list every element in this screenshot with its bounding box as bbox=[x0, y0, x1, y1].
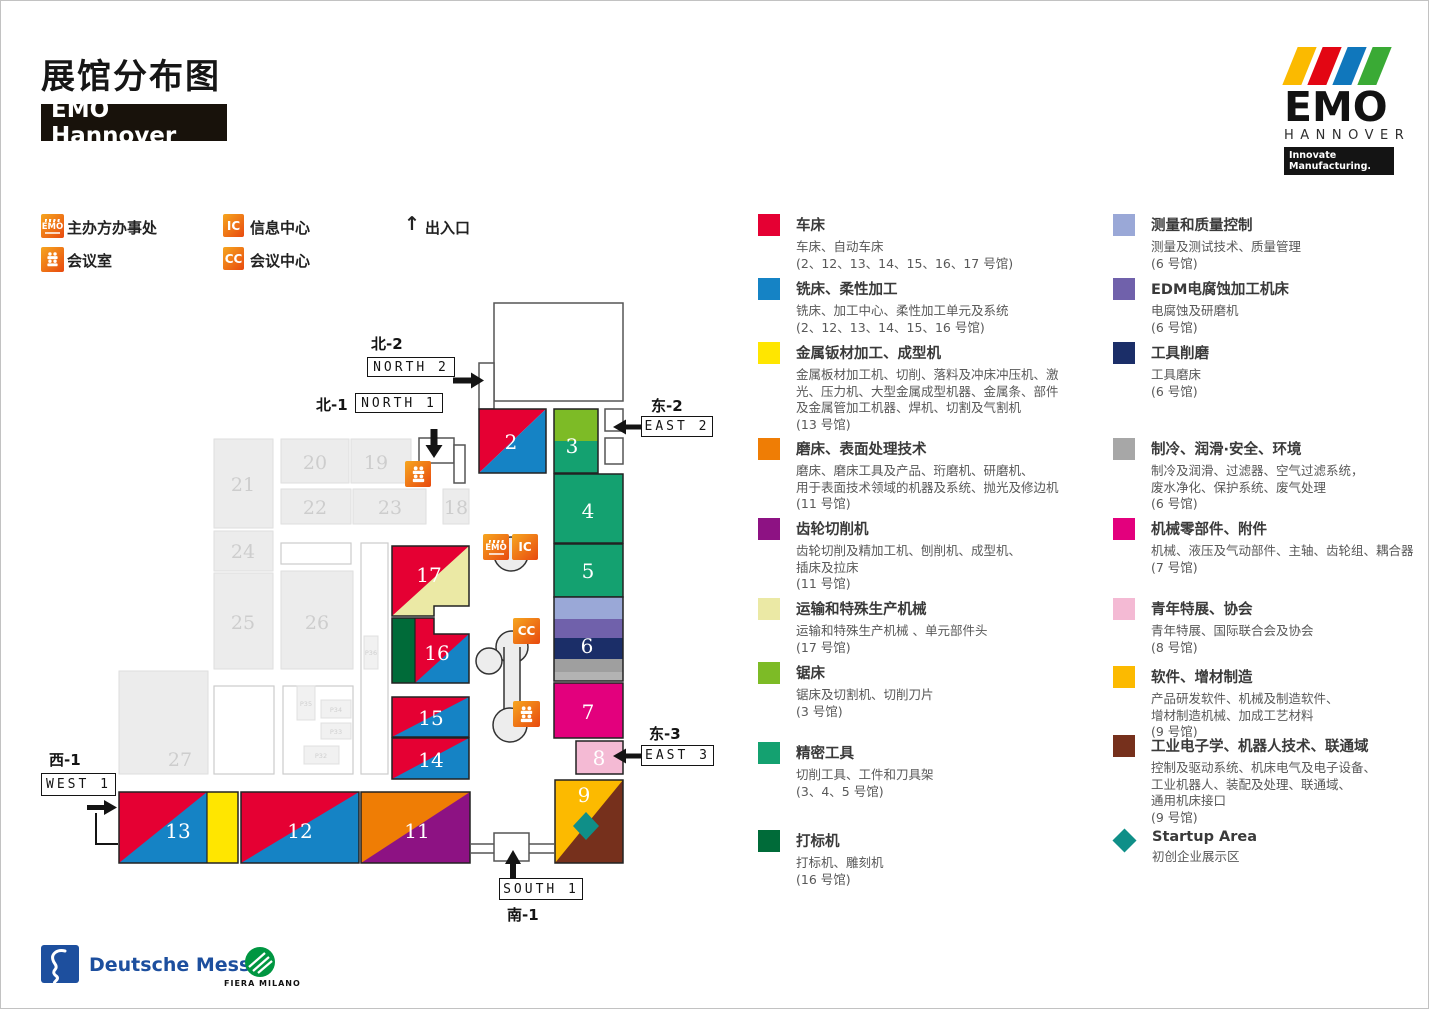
fiera-milano-logo bbox=[245, 947, 275, 977]
legend-item-robotics: 工业电子学、机器人技术、联通域 控制及驱动系统、机床电气及电子设备、工业机器人、… bbox=[1113, 735, 1429, 826]
east2-box: EAST 2 bbox=[641, 416, 713, 437]
hall-3-label: 3 bbox=[566, 434, 579, 458]
hall-26-label: 26 bbox=[305, 612, 329, 634]
fiera-milano-wordmark: FIERA MILANO bbox=[224, 979, 301, 988]
hall-22-label: 22 bbox=[303, 497, 327, 519]
entrance-arrow-icon: ↑ bbox=[404, 213, 420, 235]
hall-13-label: 13 bbox=[165, 819, 190, 843]
map-north-meeting-room-icon bbox=[405, 461, 431, 487]
hall-25-label: 25 bbox=[231, 612, 255, 634]
cooling-swatch bbox=[1113, 438, 1135, 460]
hall-11-label: 11 bbox=[404, 819, 429, 843]
category-desc: 切削工具、工件和刀具架 bbox=[796, 767, 1091, 784]
legend-item-edm: EDM电腐蚀加工机床 电腐蚀及研磨机 (6 号馆) bbox=[1113, 278, 1429, 336]
legend-item-sheet-metal: 金属钣材加工、成型机 金属板材加工机、切削、落料及冲床冲压机、激光、压力机、大型… bbox=[758, 342, 1091, 433]
organizer-office-label: 主办方办事处 bbox=[67, 217, 157, 238]
category-title: 软件、增材制造 bbox=[1151, 666, 1429, 687]
category-halls: (8 号馆) bbox=[1151, 640, 1429, 657]
hall-14-label: 14 bbox=[418, 748, 443, 772]
south1-box: SOUTH 1 bbox=[499, 878, 583, 900]
category-halls: (3 号馆) bbox=[796, 704, 1091, 721]
category-title: 金属钣材加工、成型机 bbox=[796, 342, 1091, 363]
legend-item-measuring: 测量和质量控制 测量及测试技术、质量管理 (6 号馆) bbox=[1113, 214, 1429, 272]
organizer-office-icon: EMO bbox=[41, 214, 64, 238]
category-title: EDM电腐蚀加工机床 bbox=[1151, 278, 1429, 299]
category-halls: (6 号馆) bbox=[1151, 256, 1429, 273]
tool-grinding-swatch bbox=[1113, 342, 1135, 364]
hall-2-label: 2 bbox=[505, 430, 518, 454]
category-desc: 齿轮切削及精加工机、刨削机、成型机、插床及拉床 bbox=[796, 543, 1091, 576]
hall-27-label: 27 bbox=[168, 749, 192, 771]
category-desc: 制冷及润滑、过滤器、空气过滤系统，废水净化、保护系统、废气处理 bbox=[1151, 463, 1429, 496]
sheet-metal-swatch bbox=[758, 342, 780, 364]
category-desc: 初创企业展示区 bbox=[1152, 849, 1429, 866]
hall-5-label: 5 bbox=[582, 559, 595, 583]
legend-item-gear-cutting: 齿轮切削机 齿轮切削及精加工机、刨削机、成型机、插床及拉床 (11 号馆) bbox=[758, 518, 1091, 593]
map-organizer-office-icon: EMO bbox=[483, 534, 509, 560]
p33-label: P33 bbox=[330, 728, 342, 736]
map-info-center-icon: IC bbox=[512, 534, 538, 560]
grinding-swatch bbox=[758, 438, 780, 460]
category-halls: (6 号馆) bbox=[1151, 384, 1429, 401]
emo-logo-hannover: HANNOVER bbox=[1284, 128, 1394, 143]
entrance-label: 出入口 bbox=[425, 217, 470, 238]
milling-swatch bbox=[758, 278, 780, 300]
lathe-swatch bbox=[758, 214, 780, 236]
meeting-room-label: 会议室 bbox=[67, 250, 112, 271]
info-center-label: 信息中心 bbox=[250, 217, 310, 238]
hall-12-label: 12 bbox=[287, 819, 312, 843]
category-halls: (7 号馆) bbox=[1151, 560, 1429, 577]
category-desc: 产品研发软件、机械及制造软件、增材制造机械、加成工艺材料 bbox=[1151, 691, 1429, 724]
emo-hannover-logo: EMO HANNOVER Innovate Manufacturing. bbox=[1284, 47, 1394, 175]
legend-item-milling: 铣床、柔性加工 铣床、加工中心、柔性加工单元及系统 (2、12、13、14、15… bbox=[758, 278, 1091, 336]
legend-item-youth: 青年特展、协会 青年特展、国际联合会及协会 (8 号馆) bbox=[1113, 598, 1429, 656]
hall-distribution-page: P35 P34 P33 P32 P36 bbox=[0, 0, 1429, 1009]
precision-tools-swatch bbox=[758, 742, 780, 764]
legend-item-grinding: 磨床、表面处理技术 磨床、磨床工具及产品、珩磨机、研磨机、用于表面技术领域的机器… bbox=[758, 438, 1091, 513]
measuring-swatch bbox=[1113, 214, 1135, 236]
category-desc: 运输和特殊生产机械 、单元部件头 bbox=[796, 623, 1091, 640]
category-halls: (11 号馆) bbox=[796, 496, 1091, 513]
category-desc: 机械、液压及气动部件、主轴、齿轮组、耦合器 bbox=[1151, 543, 1429, 560]
info-center-icon: IC bbox=[223, 214, 244, 237]
legend-item-sawing: 锯床 锯床及切割机、切削刀片 (3 号馆) bbox=[758, 662, 1091, 720]
category-desc: 青年特展、国际联合会及协会 bbox=[1151, 623, 1429, 640]
west1-arrow bbox=[87, 800, 117, 815]
north1-box: NORTH 1 bbox=[355, 393, 443, 413]
hall-19-label: 19 bbox=[364, 452, 388, 474]
north2-box: NORTH 2 bbox=[367, 357, 455, 377]
east3-box: EAST 3 bbox=[641, 745, 714, 766]
category-title: 测量和质量控制 bbox=[1151, 214, 1429, 235]
category-halls: (11 号馆) bbox=[796, 576, 1091, 593]
hall-6-label: 6 bbox=[581, 634, 594, 658]
south1-cn-label: 南-1 bbox=[507, 904, 539, 925]
hall-18-label: 18 bbox=[444, 497, 468, 519]
category-desc: 磨床、磨床工具及产品、珩磨机、研磨机、用于表面技术领域的机器及系统、抛光及修边机 bbox=[796, 463, 1091, 496]
west1-path bbox=[96, 813, 118, 844]
category-desc: 铣床、加工中心、柔性加工单元及系统 bbox=[796, 303, 1091, 320]
north2-cn-label: 北-2 bbox=[371, 333, 403, 354]
emo-logo-word: EMO bbox=[1284, 87, 1394, 127]
hall-8-label: 8 bbox=[593, 746, 606, 770]
p35-label: P35 bbox=[300, 700, 312, 708]
hall-24-label: 24 bbox=[231, 541, 255, 563]
hall-4-label: 4 bbox=[582, 499, 595, 523]
category-title: 制冷、润滑·安全、环境 bbox=[1151, 438, 1429, 459]
legend-item-tool-grinding: 工具削磨 工具磨床 (6 号馆) bbox=[1113, 342, 1429, 400]
category-title: 运输和特殊生产机械 bbox=[796, 598, 1091, 619]
category-title: 磨床、表面处理技术 bbox=[796, 438, 1091, 459]
p34-label: P34 bbox=[330, 706, 342, 714]
category-title: 精密工具 bbox=[796, 742, 1091, 763]
legend-item-cooling: 制冷、润滑·安全、环境 制冷及润滑、过滤器、空气过滤系统，废水净化、保护系统、废… bbox=[1113, 438, 1429, 513]
hall-20-label: 20 bbox=[303, 452, 327, 474]
north1-cn-label: 北-1 bbox=[316, 394, 348, 415]
components-swatch bbox=[1113, 518, 1135, 540]
conference-center-icon: CC bbox=[223, 247, 244, 270]
sawing-swatch bbox=[758, 662, 780, 684]
deutsche-messe-logo bbox=[41, 945, 79, 983]
category-halls: (17 号馆) bbox=[796, 640, 1091, 657]
category-title: 机械零部件、附件 bbox=[1151, 518, 1429, 539]
west1-box: WEST 1 bbox=[41, 773, 116, 796]
category-desc: 电腐蚀及研磨机 bbox=[1151, 303, 1429, 320]
category-title: 打标机 bbox=[796, 830, 1091, 851]
deutsche-messe-wordmark: Deutsche Messe bbox=[89, 954, 263, 976]
category-desc: 工具磨床 bbox=[1151, 367, 1429, 384]
map-meeting-room-icon bbox=[513, 701, 540, 727]
transport-swatch bbox=[758, 598, 780, 620]
east3-cn-label: 东-3 bbox=[649, 723, 681, 744]
map-conference-center-icon: CC bbox=[513, 618, 540, 644]
emo-logo-tagline: Innovate Manufacturing. bbox=[1284, 147, 1394, 175]
category-title: Startup Area bbox=[1152, 829, 1429, 845]
software-swatch bbox=[1113, 666, 1135, 688]
category-halls: (16 号馆) bbox=[796, 872, 1091, 889]
robotics-swatch bbox=[1113, 735, 1135, 757]
meeting-room-icon bbox=[41, 247, 64, 272]
hall-23-label: 23 bbox=[378, 497, 402, 519]
category-desc: 测量及测试技术、质量管理 bbox=[1151, 239, 1429, 256]
category-title: 锯床 bbox=[796, 662, 1091, 683]
hall-15-label: 15 bbox=[418, 706, 443, 730]
category-desc: 控制及驱动系统、机床电气及电子设备、工业机器人、装配及处理、联通域、通用机床接口 bbox=[1151, 760, 1429, 810]
hall-7-label: 7 bbox=[582, 700, 595, 724]
conference-center-label: 会议中心 bbox=[250, 250, 310, 271]
category-title: 工具削磨 bbox=[1151, 342, 1429, 363]
category-desc: 车床、自动车床 bbox=[796, 239, 1091, 256]
legend-item-marking: 打标机 打标机、雕刻机 (16 号馆) bbox=[758, 830, 1091, 888]
category-desc: 锯床及切割机、切削刀片 bbox=[796, 687, 1091, 704]
category-halls: (13 号馆) bbox=[796, 417, 1091, 434]
legend-item-precision-tools: 精密工具 切削工具、工件和刀具架 (3、4、5 号馆) bbox=[758, 742, 1091, 800]
category-halls: (2、12、13、14、15、16、17 号馆) bbox=[796, 256, 1091, 273]
legend-item-startup-area: Startup Area 初创企业展示区 bbox=[1113, 829, 1429, 866]
marking-swatch bbox=[758, 830, 780, 852]
legend-item-software: 软件、增材制造 产品研发软件、机械及制造软件、增材制造机械、加成工艺材料 (9 … bbox=[1113, 666, 1429, 741]
edm-swatch bbox=[1113, 278, 1135, 300]
category-halls: (9 号馆) bbox=[1151, 810, 1429, 827]
category-halls: (2、12、13、14、15、16 号馆) bbox=[796, 320, 1091, 337]
category-desc: 打标机、雕刻机 bbox=[796, 855, 1091, 872]
category-halls: (6 号馆) bbox=[1151, 320, 1429, 337]
category-halls: (3、4、5 号馆) bbox=[796, 784, 1091, 801]
youth-swatch bbox=[1113, 598, 1135, 620]
emo-logo-bars bbox=[1290, 47, 1394, 85]
category-title: 工业电子学、机器人技术、联通域 bbox=[1151, 735, 1429, 756]
legend-item-transport: 运输和特殊生产机械 运输和特殊生产机械 、单元部件头 (17 号馆) bbox=[758, 598, 1091, 656]
category-title: 车床 bbox=[796, 214, 1091, 235]
legend-item-lathe: 车床 车床、自动车床 (2、12、13、14、15、16、17 号馆) bbox=[758, 214, 1091, 272]
hall-16-label: 16 bbox=[424, 641, 449, 665]
page-title: 展馆分布图 bbox=[41, 49, 221, 98]
category-title: 齿轮切削机 bbox=[796, 518, 1091, 539]
hall-9-label: 9 bbox=[578, 783, 591, 807]
gear-cutting-swatch bbox=[758, 518, 780, 540]
startup-diamond-icon bbox=[1112, 828, 1136, 852]
west1-cn-label: 西-1 bbox=[49, 749, 81, 770]
hall-21-label: 21 bbox=[231, 474, 255, 496]
category-desc: 金属板材加工机、切削、落料及冲床冲压机、激光、压力机、大型金属成型机器、金属条、… bbox=[796, 367, 1091, 417]
category-title: 铣床、柔性加工 bbox=[796, 278, 1091, 299]
page-subtitle: EMO Hannover bbox=[41, 104, 227, 141]
category-halls: (6 号馆) bbox=[1151, 496, 1429, 513]
legend-item-components: 机械零部件、附件 机械、液压及气动部件、主轴、齿轮组、耦合器 (7 号馆) bbox=[1113, 518, 1429, 576]
east2-cn-label: 东-2 bbox=[651, 395, 683, 416]
hall-17-label: 17 bbox=[416, 563, 441, 587]
category-title: 青年特展、协会 bbox=[1151, 598, 1429, 619]
p36-label: P36 bbox=[365, 649, 377, 657]
p32-label: P32 bbox=[315, 752, 327, 760]
